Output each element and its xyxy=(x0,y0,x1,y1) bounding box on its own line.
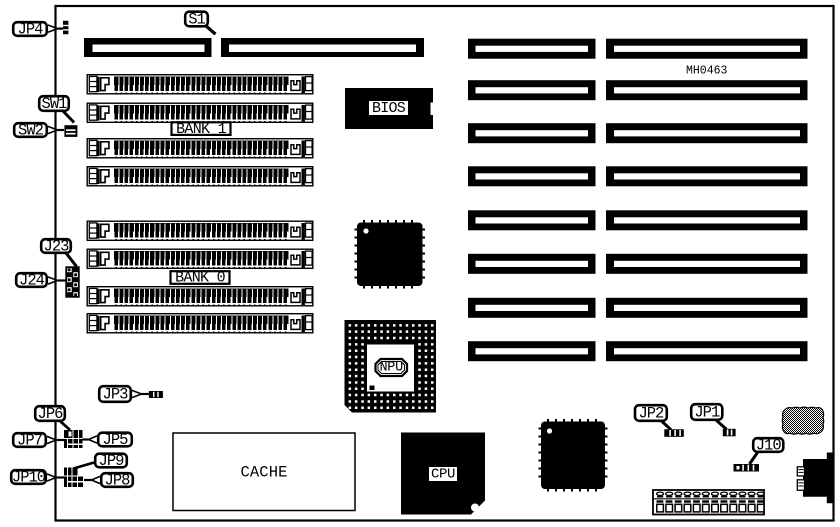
svg-text:CACHE: CACHE xyxy=(240,464,287,482)
svg-text:JP10: JP10 xyxy=(12,469,46,487)
svg-text:J24: J24 xyxy=(19,272,45,290)
svg-text:JP6: JP6 xyxy=(38,405,64,423)
svg-text:S1: S1 xyxy=(188,11,205,29)
svg-text:JP5: JP5 xyxy=(103,431,129,449)
svg-text:BANK 0: BANK 0 xyxy=(175,270,226,287)
svg-text:BIOS: BIOS xyxy=(372,100,406,117)
svg-text:SW2: SW2 xyxy=(18,122,44,140)
svg-text:NPU: NPU xyxy=(379,361,403,376)
svg-text:JP8: JP8 xyxy=(105,472,131,490)
svg-text:JP3: JP3 xyxy=(103,386,129,404)
svg-text:J23: J23 xyxy=(44,238,70,256)
svg-text:JP1: JP1 xyxy=(694,404,720,422)
svg-text:JP7: JP7 xyxy=(17,432,43,450)
svg-text:BANK 1: BANK 1 xyxy=(176,121,227,138)
svg-text:MH0463: MH0463 xyxy=(686,65,728,78)
svg-text:SW1: SW1 xyxy=(42,95,68,113)
svg-text:JP4: JP4 xyxy=(18,21,44,39)
svg-text:CPU: CPU xyxy=(431,467,455,483)
svg-text:JP2: JP2 xyxy=(638,405,664,423)
svg-text:J10: J10 xyxy=(756,437,782,455)
svg-text:JP9: JP9 xyxy=(99,452,125,470)
